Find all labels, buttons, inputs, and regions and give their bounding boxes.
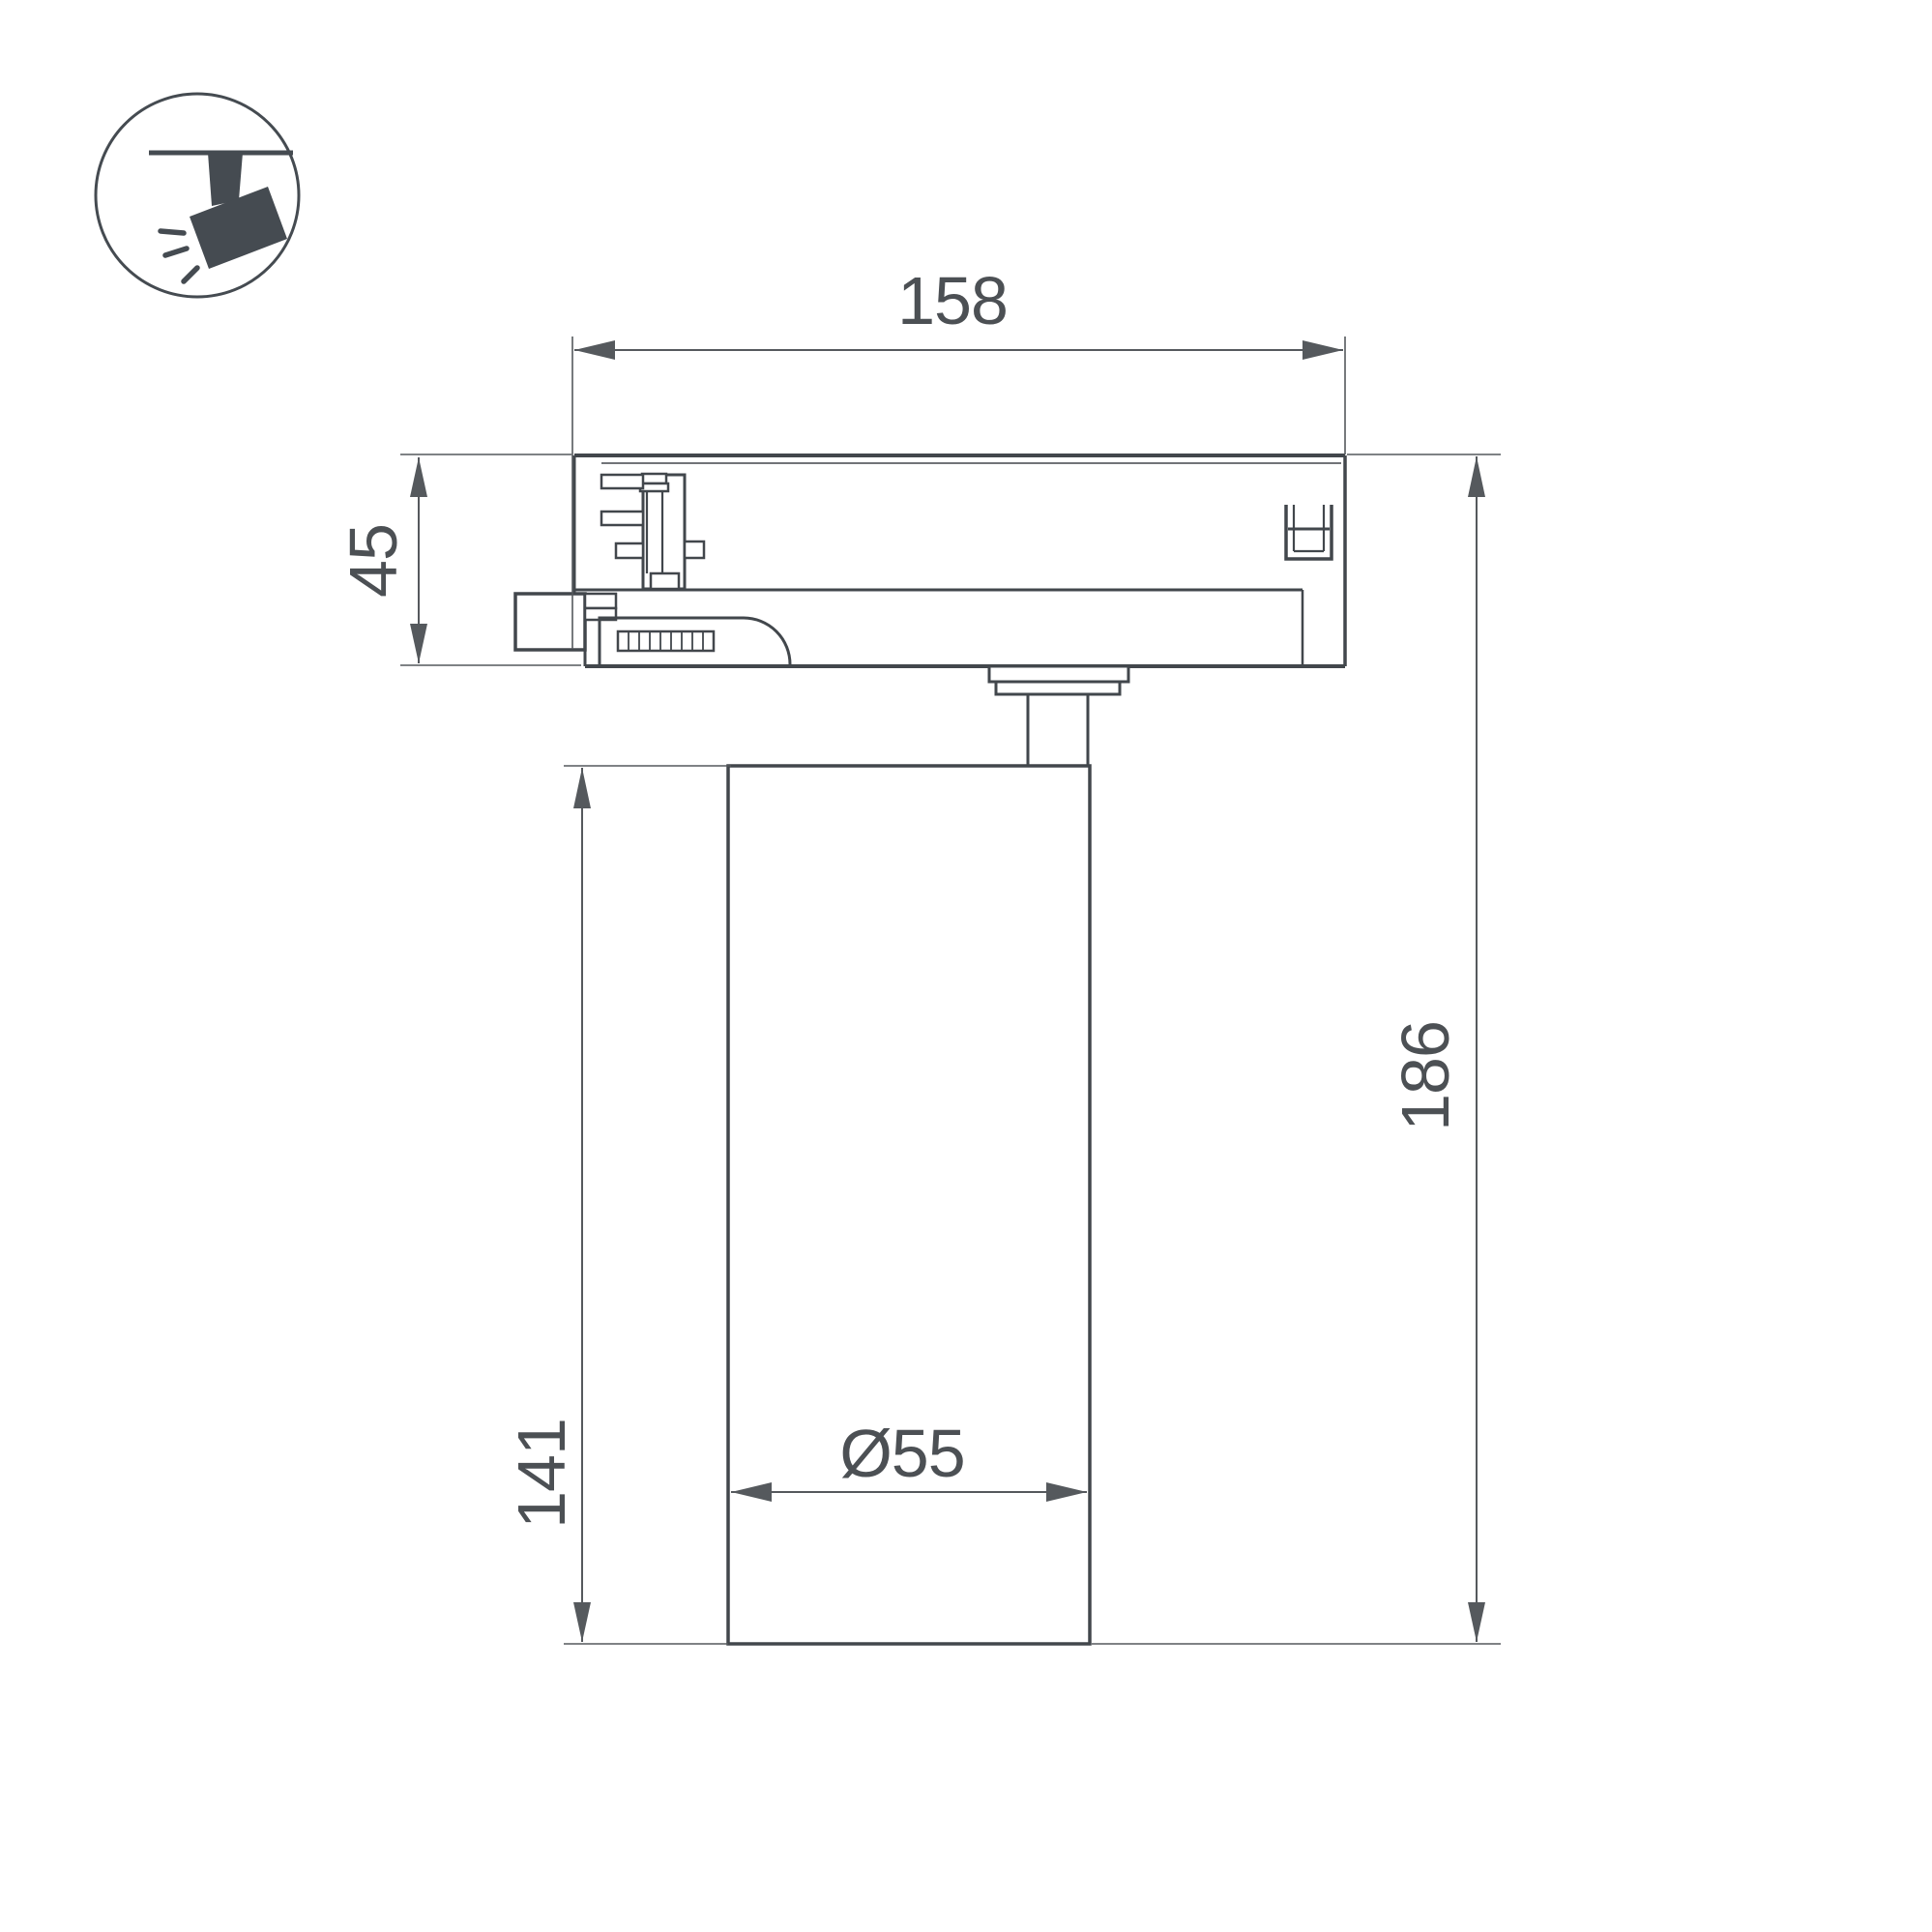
- lamp-body: [728, 766, 1090, 1644]
- dim-adapter-height-arrow-top: [410, 457, 427, 497]
- contact-side-notch: [685, 542, 704, 558]
- swivel-joint: [989, 666, 1128, 766]
- contact-pin-top: [601, 475, 643, 488]
- contact-pin-bottom: [616, 543, 643, 558]
- dim-body-height-arrow-bottom: [573, 1602, 591, 1642]
- icon-spotlight-head: [190, 187, 287, 269]
- dip-switch: [618, 631, 714, 651]
- switch-housing: [600, 618, 790, 666]
- screw-foot: [651, 573, 679, 589]
- contact-pin-middle: [601, 512, 643, 525]
- latch-tooth-upper: [585, 594, 616, 608]
- dim-diameter-arrow-right: [1046, 1482, 1087, 1502]
- track-spotlight-icon: [96, 94, 299, 297]
- dim-total-height-arrow-bottom: [1468, 1602, 1485, 1642]
- dim-diameter-label: Ø55: [839, 1416, 964, 1491]
- latch-block: [515, 594, 585, 650]
- dim-width-label: 158: [897, 263, 1008, 338]
- dim-width-arrow-right: [1303, 340, 1343, 360]
- joint-flange-upper: [989, 666, 1128, 682]
- dim-body-height-arrow-top: [573, 768, 591, 808]
- technical-drawing-page: 158 45 141 186 Ø55: [0, 0, 1932, 1932]
- joint-flange-lower: [996, 682, 1120, 694]
- dim-total-height-arrow-top: [1468, 456, 1485, 497]
- dimension-drawing: 158 45 141 186 Ø55: [0, 0, 1932, 1932]
- mount-clip: [1286, 505, 1332, 559]
- dim-width-arrow-left: [574, 340, 615, 360]
- screw-head: [642, 474, 666, 483]
- dim-diameter-arrow-left: [731, 1482, 772, 1502]
- dim-body-height: 141: [504, 766, 731, 1644]
- dim-adapter-height-arrow-bottom: [410, 624, 427, 663]
- dim-body-height-label: 141: [504, 1419, 579, 1529]
- dim-total-height-label: 186: [1388, 1021, 1463, 1131]
- icon-mount-stem: [208, 153, 243, 206]
- power-contacts: [601, 474, 704, 589]
- screw-collar: [640, 483, 668, 491]
- dim-diameter: Ø55: [731, 1416, 1087, 1502]
- dim-adapter-height-label: 45: [336, 524, 411, 598]
- icon-light-rays: [161, 231, 197, 281]
- dim-total-height: 186: [1092, 454, 1501, 1644]
